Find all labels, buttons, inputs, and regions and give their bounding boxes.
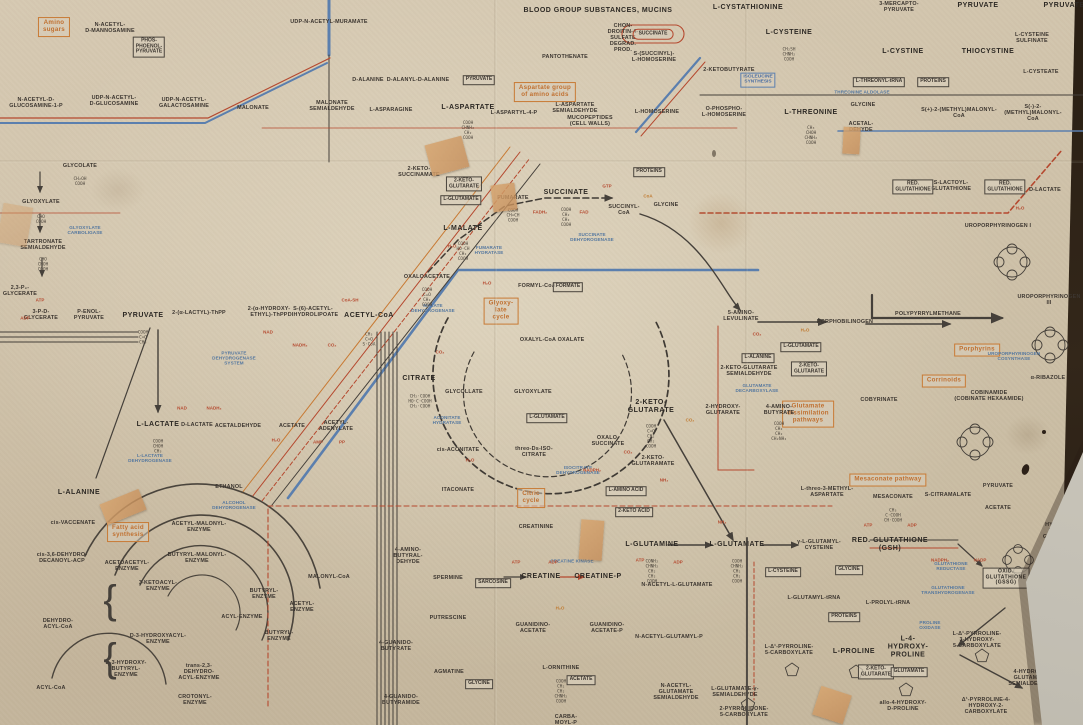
- pathway-group-label: Citric cycle: [517, 488, 545, 508]
- metabolite-label: L-ASPARAGINE: [369, 107, 412, 113]
- metabolite-label: L-CYSTEINE SULFINATE: [1007, 32, 1058, 44]
- enzyme-label: FUMARATE HYDRATASE: [475, 245, 504, 255]
- metabolite-label: allo-4-HYDROXY- D-PROLINE: [879, 700, 926, 712]
- formula-fragment: COOH CH=CH COOH: [507, 208, 520, 223]
- cofactor-label: H₂O: [483, 280, 492, 285]
- cofactor-label: CoA: [643, 193, 652, 198]
- metabolite-label: 2-KETO- GLUTARAMATE: [631, 455, 674, 467]
- metabolite-label: DEHYDRO- ACYL-CoA: [43, 618, 73, 630]
- boxed-metabolite-label: L-GLUTAMATE: [780, 342, 821, 352]
- metabolite-label: ACETOACETYL- ENZYME: [105, 560, 150, 572]
- metabolite-label-major: PYRUVATE: [957, 2, 998, 10]
- cofactor-label: H₂O: [801, 327, 810, 332]
- metabolite-label: S-CITRAMALATE: [925, 492, 972, 498]
- enzyme-label: UROPORPHYRINOGEN COSYNTHASE: [988, 351, 1041, 361]
- formula-fragment: COOH CH₂ CH₂ CH₂NH₂: [771, 422, 787, 442]
- metabolite-label-major: 2-KETO- GLUTARATE: [628, 399, 675, 415]
- formula-fragment: COOH CHNH₂ CH₂ CH₂ COOH: [731, 559, 744, 584]
- metabolite-label: 3-MERCAPTO- PYRUVATE: [879, 1, 919, 13]
- metabolite-label: ACETATE: [279, 423, 305, 429]
- boxed-metabolite-label: PHOS- PHOENOL- PYRUVATE: [133, 37, 165, 58]
- cofactor-label: NH₃: [718, 519, 727, 524]
- metabolite-label: UDP-N-ACETYL-MURAMATE: [290, 19, 367, 25]
- metabolite-label: D-LACTATE: [1029, 187, 1061, 193]
- cofactor-label: NADPH₂: [583, 467, 601, 472]
- cofactor-label: NH₃: [660, 477, 669, 482]
- metabolite-label: GLYCINE: [851, 102, 876, 108]
- metabolite-label: GUANIDINO- ACETATE-P: [590, 622, 625, 634]
- metabolite-label: BUTYRYL- ENZYME: [265, 630, 294, 642]
- boxed-metabolite-label: GLYCINE: [835, 565, 863, 575]
- metabolite-label: 2-(α-LACTYL)-ThPP: [172, 310, 226, 316]
- pathway-group-label: Mesaconate pathway: [849, 474, 926, 487]
- cofactor-label: H₂O: [448, 243, 457, 248]
- label-layer: Amino sugarsAspartate group of amino aci…: [0, 0, 1083, 725]
- boxed-metabolite-label: GLYCINE: [465, 679, 493, 689]
- capsule-label: SUCCINATE: [633, 29, 674, 40]
- metabolite-label-major: CREATINE-P: [574, 573, 621, 581]
- formula-fragment: COOH CHNH₂ CH₂ COOH: [462, 121, 475, 141]
- metabolite-label: 4-AMINO- BUTYRAL- DEHYDE: [393, 547, 422, 565]
- metabolite-label: PANTOTHENATE: [542, 54, 588, 60]
- boxed-metabolite-label: PROTEINS: [917, 77, 949, 87]
- metabolite-label-major: CITRATE: [402, 375, 435, 383]
- metabolite-label: L-PROLYL-tRNA: [866, 600, 910, 606]
- metabolite-label: S-(SUCCINYL)- L-HOMOSERINE: [632, 51, 676, 63]
- metabolite-label: D-3-HYDROXYACYL- ENZYME: [130, 633, 186, 645]
- metabolite-label: ACETYL-MALONYL- ENZYME: [172, 521, 227, 533]
- cofactor-label: ATP: [864, 522, 873, 527]
- metabolite-label-major: L-GLUTAMINE: [625, 541, 678, 549]
- metabolite-label: OXALOACETATE: [404, 274, 450, 280]
- metabolite-label: PORPHOBILINOGEN: [817, 319, 873, 325]
- metabolite-label: 3-KETOACYL- ENZYME: [139, 580, 177, 592]
- metabolite-label: 2-HYDROXY- GLUTARATE: [706, 404, 741, 416]
- metabolite-label: L-Δ¹-PYRROLINE- 3-HYDROXY- 5-CARBOXYLATE: [953, 631, 1002, 649]
- metabolite-label: BUTYRYL- ENZYME: [250, 588, 279, 600]
- metabolite-label: S(-)-2-(METHYL)MALONYL- CoA: [1004, 104, 1061, 122]
- metabolite-label-major: L-ALANINE: [58, 489, 100, 497]
- metabolite-label-major: L-ASPARTATE: [441, 104, 494, 112]
- metabolite-label: SUCCINYL- CoA: [608, 204, 639, 216]
- cofactor-label: CO₂: [686, 417, 695, 422]
- boxed-metabolite-label: L-AMINO ACID: [606, 486, 647, 496]
- enzyme-box-label: ISOLEUCINE SYNTHESIS: [740, 73, 775, 88]
- metabolite-label-major: L-CYSTEINE: [766, 29, 813, 37]
- metabolite-label: D-ALANYL-D-ALANINE: [387, 77, 450, 83]
- pathway-group-label: Amino sugars: [38, 17, 70, 37]
- formula-fragment: CH₂OH COOH: [74, 177, 87, 187]
- metabolite-label: OXALO- SUCCINATE: [592, 435, 625, 447]
- boxed-metabolite-label: 2-KETO- GLUTARATE: [858, 664, 894, 679]
- metabolite-label: S-LACTOYL- GLUTATHIONE: [931, 180, 971, 192]
- metabolite-label-major: L-PROLINE: [833, 648, 875, 656]
- metabolite-label: MALONATE SEMIALDEHYDE: [309, 100, 354, 112]
- tape-piece: [579, 519, 605, 561]
- metabolite-label: N-ACETYL- D-MANNOSAMINE: [85, 22, 135, 34]
- cofactor-label: ADP: [673, 559, 683, 564]
- metabolite-label: POLYPYRRYLMETHANE: [895, 311, 961, 317]
- formula-fragment: COOH CH₂ CH₂ COOH: [561, 208, 571, 228]
- pathway-group-label: Fatty acid synthesis: [107, 522, 149, 542]
- boxed-metabolite-label: 2-KETO- GLUTARATE: [791, 361, 827, 376]
- metabolite-label-major: L-CYSTATHIONINE: [713, 4, 783, 12]
- formula-fragment: COOH HO·CH CH₂ COOH: [457, 242, 470, 262]
- metabolite-label: ACETYL- ADENYLATE: [319, 420, 353, 432]
- formula-fragment: CH₃ C=O S·CoA: [363, 332, 376, 347]
- metabolite-label: S-(6)-ACETYL- DIHYDROLIPOATE: [288, 306, 339, 318]
- brace-glyph: {: [103, 638, 116, 678]
- enzyme-label: GLYOXYLATE CARBOLIGASE: [67, 225, 102, 235]
- speck: [1042, 430, 1046, 434]
- boxed-metabolite-label: PYRUVATE: [463, 75, 495, 85]
- metabolite-label: GUANIDINO- ACETATE: [516, 622, 551, 634]
- formula-fragment: CH₂SH CHNH₂ COOH: [783, 47, 796, 62]
- metabolite-label: COBINAMIDE (COBINATE HEXAAMIDE): [954, 390, 1023, 402]
- metabolite-label-major: SUCCINATE: [544, 189, 589, 197]
- metabolite-label: 2-(α-HYDROXY- ETHYL)-ThPP: [248, 306, 290, 318]
- enzyme-label: GLUTATHIONE TRANSHYDROGENASE: [921, 585, 974, 595]
- metabolite-label: cis-VACCENATE: [51, 520, 96, 526]
- metabolite-label: N-ACETYL-D- GLUCOSAMINE-1-P: [9, 97, 63, 109]
- metabolite-label: ACYL-ENZYME: [221, 614, 262, 620]
- cofactor-label: ADP: [20, 315, 30, 320]
- enzyme-label: SUCCINATE DEHYDROGENASE: [570, 232, 614, 242]
- metabolite-label: D-ALANINE: [352, 77, 383, 83]
- cofactor-label: H₂O: [272, 437, 281, 442]
- metabolite-label: CARBA- MOYL-P: [555, 714, 577, 725]
- cofactor-label: NADP: [974, 557, 987, 562]
- formula-fragment: CHO COOH: [36, 215, 46, 225]
- metabolite-label: ACETYL- ENZYME: [290, 601, 315, 613]
- metabolite-label: BUTYRYL-MALONYL- ENZYME: [168, 552, 227, 564]
- metabolite-label: OXALYL-CoA: [520, 337, 556, 343]
- metabolite-label-major: L-CYSTINE: [882, 48, 923, 56]
- metabolite-label: GLYCOLLATE: [445, 389, 483, 395]
- boxed-metabolite-label: L-GLUTAMATE: [526, 413, 567, 423]
- metabolite-label: cis-3,6-DEHYDRO- DECANOYL-ACP: [37, 552, 88, 564]
- boxed-metabolite-label: 2-KETO- GLUTARATE: [446, 176, 482, 191]
- cofactor-label: CoA-SH: [342, 297, 359, 302]
- cofactor-label: GTP: [602, 183, 611, 188]
- metabolite-label: L-Δ¹-PYRROLINE- 5-CARBOXYLATE: [765, 644, 814, 656]
- metabolite-label-major: THIOCYSTINE: [962, 48, 1015, 56]
- metabolite-label: N-ACETYL- GLUTAMATE SEMIALDEHYDE: [653, 683, 698, 701]
- brace-glyph: {: [103, 580, 116, 620]
- formula-fragment: CH₂·COOH HO·C·COOH CH₂·COOH: [408, 394, 431, 409]
- metabolite-label-major: L-THREONINE: [784, 109, 837, 117]
- speck: [712, 150, 716, 157]
- enzyme-label: PROLINE OXIDASE: [919, 620, 940, 630]
- metabolite-label: O-PHOSPHO- L-HOMOSERINE: [702, 106, 746, 118]
- boxed-metabolite-label: L-THREONYL-tRNA: [853, 77, 905, 87]
- metabolite-label: AGMATINE: [434, 669, 464, 675]
- boxed-metabolite-label: L-GLUTAMATE: [440, 195, 481, 205]
- metabolite-label: 2-KETO-GLUTARATE SEMIALDEHYDE: [720, 365, 777, 377]
- metabolite-label: cis-ACONITATE: [437, 447, 480, 453]
- metabolite-label: 5-AMINO- LEVULINATE: [723, 310, 758, 322]
- tape-piece: [842, 127, 860, 155]
- photograph-of-pathway-chart: Amino sugarsAspartate group of amino aci…: [0, 0, 1083, 725]
- metabolite-label: PYRUVATE: [983, 483, 1013, 489]
- metabolite-label: UDP-N-ACETYL- GALACTOSAMINE: [159, 97, 209, 109]
- cofactor-label: ATP: [36, 297, 45, 302]
- metabolite-label: OXALATE: [558, 337, 585, 343]
- cofactor-label: H₂O: [466, 457, 475, 462]
- metabolite-label: PUTRESCINE: [430, 615, 467, 621]
- metabolite-label: L-CYSTEATE: [1023, 69, 1058, 75]
- metabolite-label: GLYOXYLATE: [22, 199, 60, 205]
- boxed-metabolite-label: RED. GLUTATHIONE: [984, 179, 1025, 194]
- metabolite-label: P-ENOL- PYRUVATE: [74, 309, 104, 321]
- cofactor-label: CO₂: [753, 331, 762, 336]
- metabolite-label: ETHANOL: [215, 484, 242, 490]
- formula-fragment: COOH C=O CH₂ COOH: [422, 288, 432, 308]
- metabolite-label: L-GLUTAMYL-tRNA: [788, 595, 841, 601]
- metabolite-label-major: RED. GLUTATHIONE (GSH): [852, 537, 928, 553]
- metabolite-label: L-GLUTAMATE-γ- SEMIALDEHYDE: [711, 686, 759, 698]
- metabolite-label: 4-GUANIDO- BUTYRAMIDE: [382, 694, 420, 706]
- metabolite-label-major: L-LACTATE: [137, 421, 180, 429]
- metabolite-label-major: L-GLUTAMATE: [709, 541, 764, 549]
- boxed-metabolite-label: PROTEINS: [828, 612, 860, 622]
- formula-fragment: CONH₂ CHNH₂ CH₂ CH₂ COOH: [646, 559, 659, 584]
- metabolite-label: L-HOMOSERINE: [635, 109, 679, 115]
- cofactor-label: ATP: [636, 557, 645, 562]
- cofactor-label: NADPH₂: [931, 557, 949, 562]
- metabolite-label: COBYRINATE: [860, 397, 897, 403]
- metabolite-label: L-threo-3-METHYL- ASPARTATE: [801, 486, 854, 498]
- cofactor-label: PP: [339, 439, 345, 444]
- metabolite-label-major: PYRUVATE: [1043, 2, 1083, 10]
- cofactor-label: ADP: [907, 522, 917, 527]
- metabolite-label: L-ASPARTATE SEMIALDEHYDE: [552, 102, 597, 114]
- metabolite-label: L-ORNITHINE: [543, 665, 580, 671]
- metabolite-label: MUCOPEPTIDES (CELL WALLS): [567, 115, 613, 127]
- metabolite-label: 2-PYRROLIDONE- 5-CARBOXYLATE: [720, 706, 769, 718]
- metabolite-label: SPERMINE: [433, 575, 463, 581]
- metabolite-label: 4-GUANIDO- BUTYRATE: [379, 640, 413, 652]
- boxed-metabolite-label: L-CYSTEINE: [765, 567, 801, 577]
- metabolite-label: FORMYL-CoA: [518, 283, 556, 289]
- enzyme-label: GLUTAMATE DECARBOXYLASE: [736, 383, 779, 393]
- formula-fragment: CH₃ CHOH CHNH₂ COOH: [805, 126, 818, 146]
- metabolite-label-major: L-MALATE: [443, 225, 482, 233]
- metabolite-label: GLYCOLATE: [63, 163, 97, 169]
- metabolite-label: GLYOXYLATE: [514, 389, 552, 395]
- tape-piece: [490, 183, 517, 213]
- cofactor-label: NAD: [177, 405, 187, 410]
- boxed-metabolite-label: FORMATE: [553, 282, 583, 292]
- metabolite-label-major: L-4- HYDROXY- PROLINE: [888, 635, 929, 658]
- cofactor-label: H₂O: [1016, 205, 1025, 210]
- formula-fragment: COOH C=O CH₃: [138, 330, 148, 345]
- enzyme-label: MALATE DEHYDROGENASE: [411, 303, 455, 313]
- cofactor-label: CO₂: [624, 449, 633, 454]
- cofactor-label: CO₂: [436, 349, 445, 354]
- metabolite-label: ACYL-CoA: [36, 685, 65, 691]
- metabolite-label: CREATININE: [519, 524, 554, 530]
- boxed-metabolite-label: ACETATE: [567, 675, 596, 685]
- metabolite-label: ACETATE: [985, 505, 1011, 511]
- cofactor-label: FADH₂: [533, 209, 547, 214]
- cofactor-label: CO₂: [328, 342, 337, 347]
- formula-fragment: COOH CHOH CH₃: [153, 439, 163, 454]
- cofactor-label: NAD: [263, 329, 273, 334]
- metabolite-label: ACETALDEHYDE: [215, 423, 261, 429]
- boxed-metabolite-label: L-ALANINE: [742, 353, 775, 363]
- metabolite-label: D-LACTATE: [181, 422, 213, 428]
- pathway-group-label: Aspartate group of amino acids: [514, 82, 576, 102]
- metabolite-label: N-ACETYL-GLUTAMYL-P: [635, 634, 703, 640]
- formula-fragment: COOH C=O CH₂ CH₂ COOH: [646, 424, 656, 449]
- metabolite-label: MALONYL-CoA: [308, 574, 350, 580]
- metabolite-label: CROTONYL- ENZYME: [178, 694, 212, 706]
- metabolite-label: 2,3-P₂- GLYCERATE: [3, 285, 37, 297]
- metabolite-label: UROPORPHYRINOGEN I: [965, 223, 1032, 229]
- formula-fragment: CHO CHOH COOH: [38, 257, 48, 272]
- pathway-group-label: Corrinoids: [922, 375, 966, 388]
- metabolite-label: MESACONATE: [873, 494, 913, 500]
- metabolite-label: Δ¹-PYRROLINE-4- HYDROXY-2- CARBOXYLATE: [962, 697, 1011, 715]
- cofactor-label: NADH₂: [293, 342, 308, 347]
- cofactor-label: NADH₂: [207, 405, 222, 410]
- metabolite-label-major: PYRUVATE: [122, 312, 163, 320]
- pathway-group-label: Glyoxy- late cycle: [484, 298, 519, 325]
- boxed-metabolite-label: 2-KETO ACID: [615, 507, 653, 517]
- metabolite-label: trans-2,3- DEHYDRO- ACYL-ENZYME: [178, 663, 219, 681]
- metabolite-label: α-RIBAZOLE: [1031, 375, 1066, 381]
- metabolite-label: S(+)-2-(METHYL)MALONYL- CoA: [921, 107, 997, 119]
- formula-fragment: COOH CH₂ CH₂ CHNH₂ COOH: [555, 679, 568, 704]
- metabolite-label: L-ASPARTYL-4-P: [491, 110, 538, 116]
- enzyme-label: ALCOHOL DEHYDROGENASE: [212, 500, 256, 510]
- enzyme-label: THREONINE ALDOLASE: [834, 89, 889, 94]
- cofactor-label: ADP: [548, 559, 558, 564]
- metabolite-label: UROPORPHYRINOGEN III: [1017, 294, 1080, 306]
- cofactor-label: AMP: [313, 439, 323, 444]
- metabolite-label-major: CREATINE: [521, 573, 560, 581]
- metabolite-label-major: BLOOD GROUP SUBSTANCES, MUCINS: [524, 7, 673, 15]
- cofactor-label: FAD: [580, 209, 589, 214]
- metabolite-label: UDP-N-ACETYL- D-GLUCOSAMINE: [90, 95, 139, 107]
- formula-fragment: CH₃ C·COOH CH·COOH: [884, 508, 902, 523]
- boxed-metabolite-label: GLUTAMATE: [891, 667, 928, 677]
- enzyme-label: PYRUVATE DEHYDROGENASE SYSTEM: [212, 350, 256, 365]
- cofactor-label: ATP: [512, 559, 521, 564]
- metabolite-label: 4-AMINO- BUTYRATE: [764, 404, 795, 416]
- cofactor-label: H₂O: [556, 605, 565, 610]
- metabolite-label: γ-L-GLUTAMYL- CYSTEINE: [797, 539, 841, 551]
- metabolite-label: threo-Ds-ISO- CITRATE: [515, 446, 553, 458]
- enzyme-label: L-LACTATE DEHYDROGENASE: [128, 453, 172, 463]
- metabolite-label: MALONATE: [237, 105, 269, 111]
- metabolite-label-major: ACETYL-CoA: [344, 312, 394, 320]
- metabolite-label: GLYCINE: [654, 202, 679, 208]
- boxed-metabolite-label: PROTEINS: [633, 167, 665, 177]
- metabolite-label: ITACONATE: [442, 487, 474, 493]
- boxed-metabolite-label: SARCOSINE: [475, 578, 511, 588]
- enzyme-label: ACONITATE HYDRATASE: [433, 415, 462, 425]
- boxed-metabolite-label: RED. GLUTATHIONE: [892, 179, 933, 194]
